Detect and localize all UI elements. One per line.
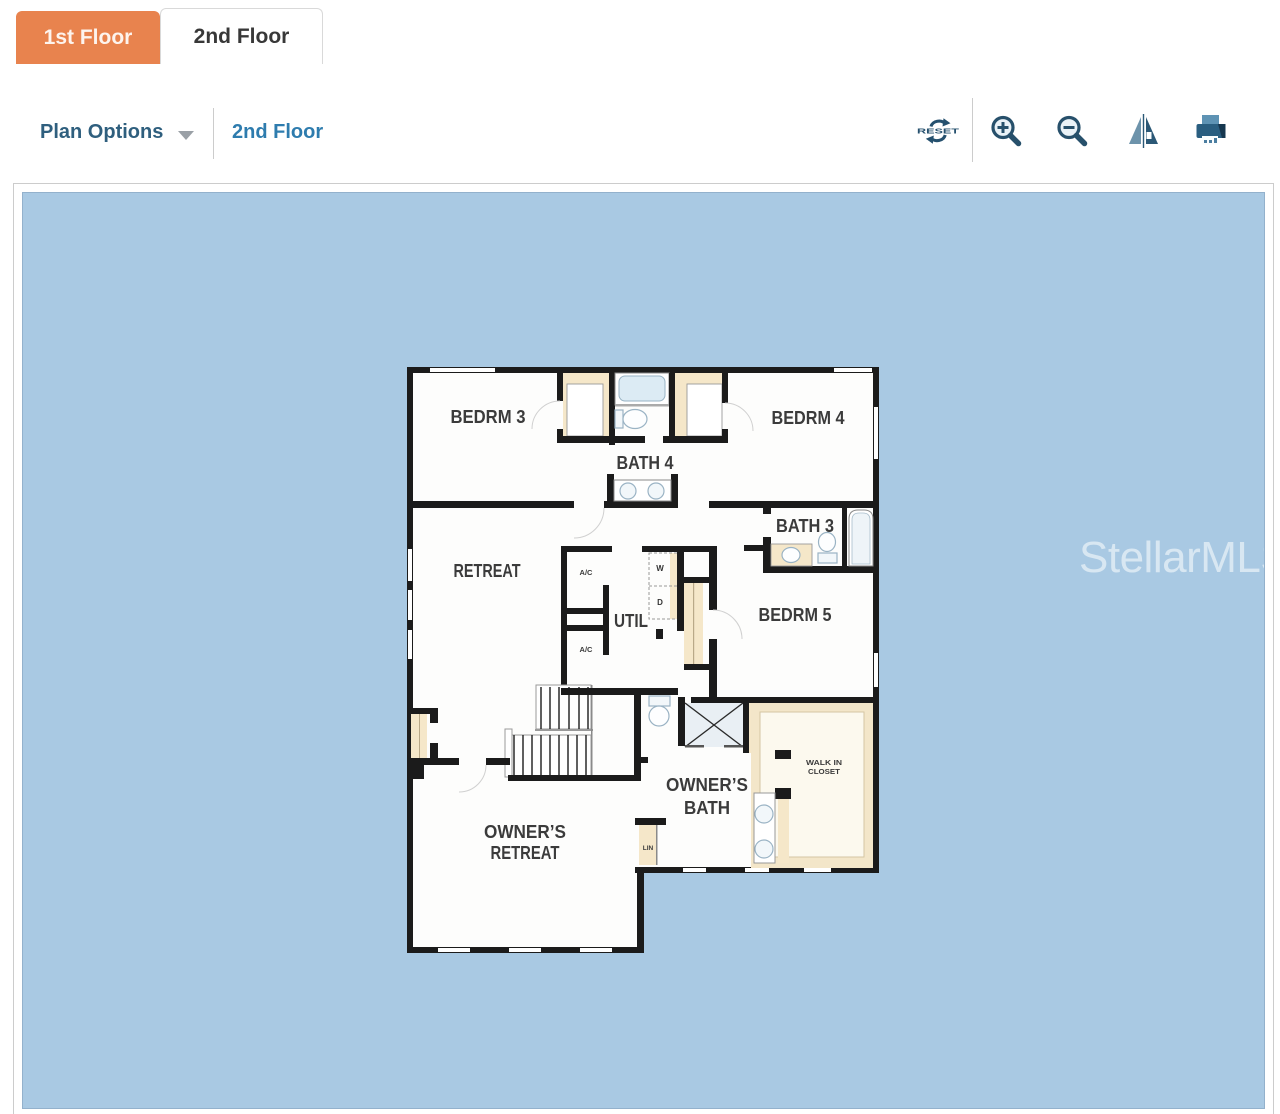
svg-text:CLOSET: CLOSET bbox=[808, 769, 841, 776]
svg-text:BATH 3: BATH 3 bbox=[776, 516, 834, 536]
svg-text:OWNER’S: OWNER’S bbox=[484, 822, 566, 842]
svg-text:WALK IN: WALK IN bbox=[806, 760, 842, 767]
svg-text:BATH: BATH bbox=[684, 798, 730, 818]
svg-text:A/C: A/C bbox=[580, 568, 594, 577]
svg-text:RETREAT: RETREAT bbox=[491, 843, 560, 863]
svg-text:LIN: LIN bbox=[643, 845, 654, 852]
svg-text:RETREAT: RETREAT bbox=[454, 561, 521, 581]
svg-text:OWNER’S: OWNER’S bbox=[666, 775, 748, 795]
svg-text:BEDRM 3: BEDRM 3 bbox=[451, 407, 526, 427]
svg-text:BEDRM 4: BEDRM 4 bbox=[772, 408, 845, 428]
svg-text:A/C: A/C bbox=[580, 645, 594, 654]
svg-text:BEDRM 5: BEDRM 5 bbox=[759, 605, 832, 625]
svg-text:UTIL: UTIL bbox=[614, 611, 648, 631]
svg-text:RESET: RESET bbox=[917, 128, 960, 135]
svg-text:D: D bbox=[657, 598, 663, 607]
svg-text:BATH 4: BATH 4 bbox=[617, 453, 674, 473]
svg-text:W: W bbox=[656, 564, 664, 573]
